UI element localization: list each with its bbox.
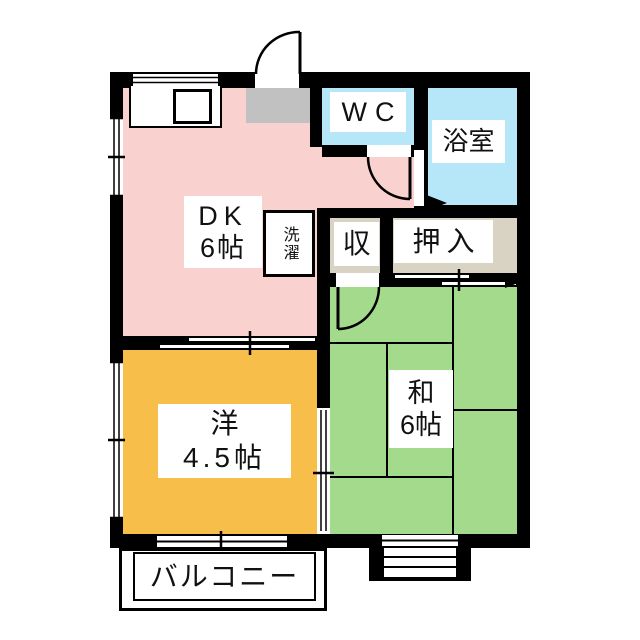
western-room-label: 洋 4.5帖 [158, 404, 291, 478]
wc-label: WC [330, 92, 406, 132]
sliding-door-western-japanese [317, 408, 330, 531]
wall-wc-left [310, 88, 322, 147]
kitchen-sink [173, 89, 212, 124]
storage-label-name: 収 [342, 227, 370, 261]
dk-label: DK 6帖 [184, 196, 262, 268]
entrance-genkan [246, 88, 310, 123]
fusuma-closet-panel1 [393, 273, 471, 280]
window-western-balcony [157, 536, 287, 547]
sliding-door-dk-western-panel1 [187, 336, 317, 343]
storage-label: 収 [334, 222, 379, 266]
laundry-box: 洗濯 [263, 210, 315, 277]
entrance-door-gap [255, 72, 299, 88]
dk-label-name: DK [198, 200, 248, 232]
japanese-room-label-name: 和 [408, 377, 435, 409]
laundry-box-label: 洗濯 [279, 226, 298, 262]
wc-label-name: WC [334, 96, 403, 128]
western-room-label-size: 4.5帖 [183, 441, 266, 475]
window-dk-left [110, 118, 123, 196]
wall-storage-closet-divider [380, 218, 393, 275]
japanese-room-label-size: 6帖 [400, 409, 442, 441]
japanese-room-label: 和 6帖 [389, 370, 453, 448]
closet-label: 押入 [394, 220, 493, 263]
western-room-label-name: 洋 [210, 407, 238, 441]
window-japanese-bottom [382, 535, 458, 546]
fusuma-closet-panel2 [440, 280, 518, 287]
closet-label-name: 押入 [406, 225, 480, 259]
window-western-left [110, 362, 123, 518]
balcony-label-name: バルコニー [150, 560, 299, 594]
balcony-label: バルコニー [133, 552, 316, 601]
bathroom-label-name: 浴室 [442, 126, 494, 157]
window-kitchen-top [133, 74, 218, 86]
sliding-door-dk-western-panel2 [158, 343, 291, 350]
floor-plan: DK 6帖 WC 浴室 収 押入 和 6帖 洋 4.5帖 洗濯 バルコニー [0, 0, 640, 640]
wc-door-gap [367, 145, 411, 157]
storage-door-gap [336, 273, 379, 287]
step-inner [384, 548, 456, 577]
bathroom-label: 浴室 [432, 120, 505, 163]
entrance-door-arc [256, 32, 300, 74]
dk-label-size: 6帖 [200, 232, 246, 264]
wall-right [517, 72, 530, 548]
bathroom-door-panel [414, 150, 424, 206]
wall-dk-japanese-divider [317, 208, 330, 408]
wall-closet-top [317, 208, 518, 218]
